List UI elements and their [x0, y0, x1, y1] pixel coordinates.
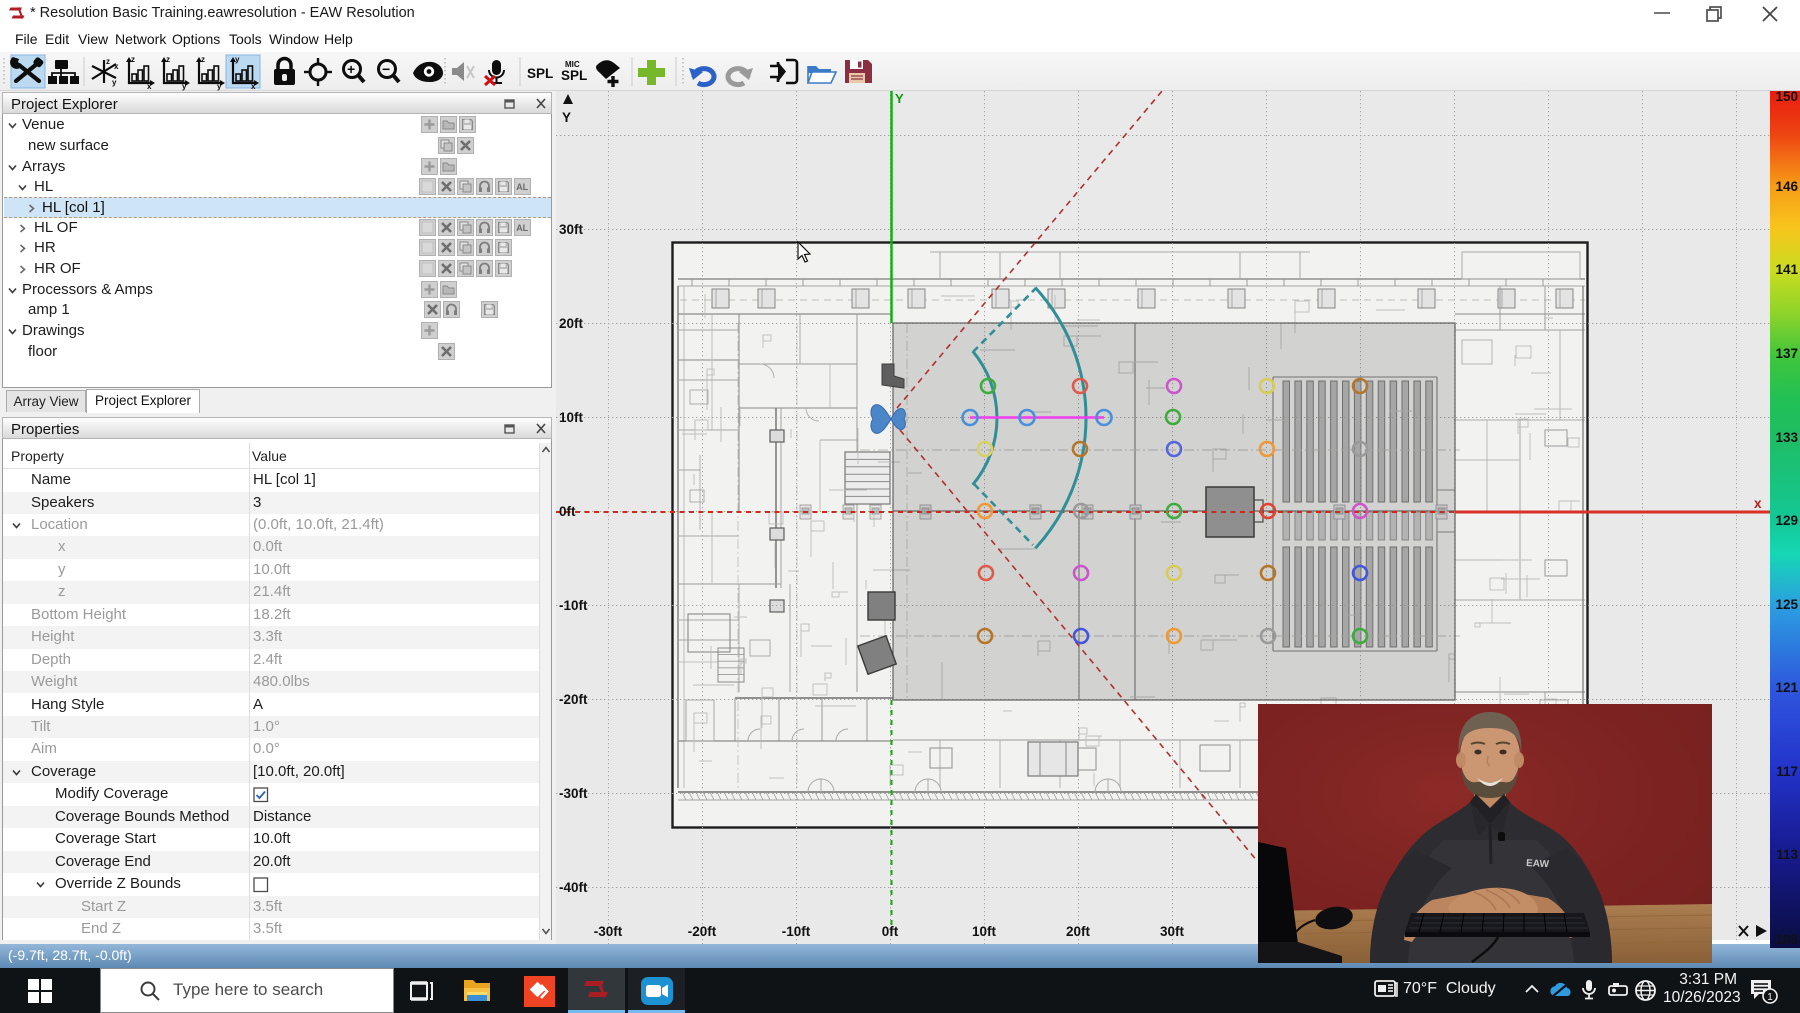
svg-text:30ft: 30ft — [559, 222, 584, 237]
svg-text:-10ft: -10ft — [559, 598, 588, 613]
svg-text:−: − — [382, 61, 390, 77]
svg-text:y: y — [112, 78, 117, 87]
svg-text:-30ft: -30ft — [594, 924, 623, 939]
svg-text:x: x — [251, 82, 256, 91]
svg-text:x: x — [114, 62, 119, 71]
svg-text:y: y — [217, 82, 222, 91]
svg-text:0ft: 0ft — [882, 924, 899, 939]
svg-text:30ft: 30ft — [1160, 924, 1185, 939]
svg-text:y: y — [235, 55, 240, 64]
svg-text:AL: AL — [516, 223, 528, 233]
svg-text:-40ft: -40ft — [559, 880, 588, 895]
svg-text:SPL: SPL — [561, 68, 587, 83]
svg-text:EAW: EAW — [1526, 858, 1550, 870]
svg-text:0ft: 0ft — [559, 504, 576, 519]
svg-text:-20ft: -20ft — [559, 692, 588, 707]
svg-text:x: x — [1754, 496, 1762, 511]
svg-text:Y: Y — [895, 91, 904, 106]
svg-text:20ft: 20ft — [1066, 924, 1091, 939]
svg-text:+: + — [347, 61, 355, 77]
svg-text:z: z — [166, 55, 170, 64]
svg-text:-20ft: -20ft — [688, 924, 717, 939]
svg-text:-30ft: -30ft — [559, 786, 588, 801]
svg-text:-10ft: -10ft — [782, 924, 811, 939]
svg-text:Y: Y — [562, 110, 571, 125]
svg-text:z: z — [131, 55, 135, 64]
svg-text:10ft: 10ft — [972, 924, 997, 939]
svg-text:z: z — [106, 57, 110, 66]
svg-text:AL: AL — [516, 182, 528, 192]
svg-text:SPL: SPL — [527, 66, 553, 81]
svg-text:x: x — [147, 82, 152, 91]
svg-text:20ft: 20ft — [559, 316, 584, 331]
svg-text:z: z — [201, 55, 205, 64]
svg-text:1: 1 — [1767, 992, 1773, 1003]
svg-text:10ft: 10ft — [559, 410, 584, 425]
svg-text:y: y — [182, 82, 187, 91]
